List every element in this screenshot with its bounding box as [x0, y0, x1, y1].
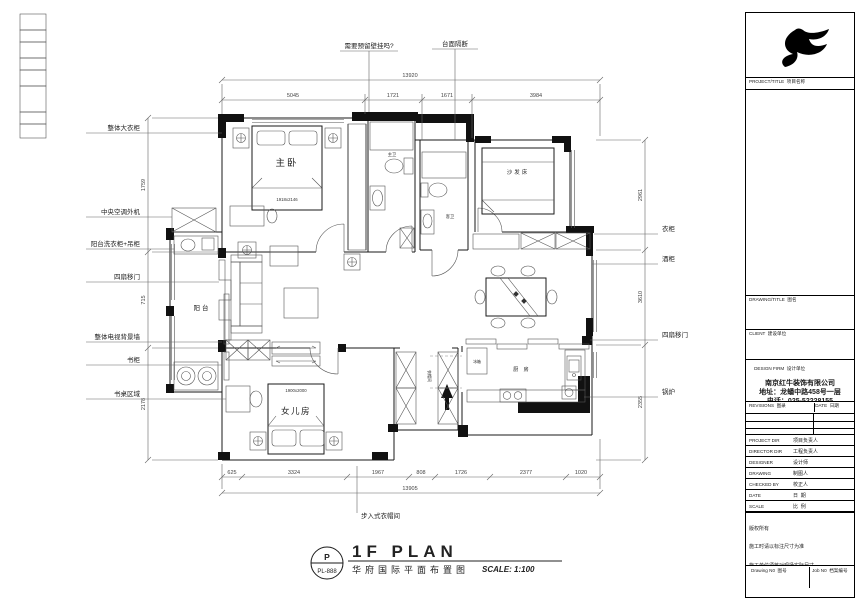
desk-chair — [250, 391, 262, 407]
guest-bath-label: 客卫 — [446, 213, 455, 220]
drawing-sheet: 主卧 1918x2146 主卫 客卫 沙发床 — [0, 0, 860, 608]
bull-logo-icon — [765, 28, 835, 68]
svg-text:1020: 1020 — [575, 470, 587, 476]
chair — [521, 266, 535, 276]
revisions-header: REVISIONS 图录 DATE 日期 — [746, 401, 854, 413]
design-firm-section: DESIGN FIRM 设计单位 南京红牛装饰有限公司 地址：龙蟠中路458号一… — [746, 359, 854, 401]
row-project-dir: PROJECT DIR 项目负责人 — [746, 434, 854, 445]
svg-text:3984: 3984 — [530, 93, 542, 99]
design-firm-label: DESIGN FIRM 设计单位 — [754, 366, 805, 371]
master-bath-label: 主卫 — [388, 151, 397, 157]
title-mark: P — [324, 552, 330, 562]
chair — [475, 290, 485, 304]
toilet — [385, 159, 403, 173]
annotation-walk-in-closet: 步入式衣帽间 — [361, 511, 400, 520]
row-checked: CHECKED BY 校正人 — [746, 478, 854, 489]
svg-text:808: 808 — [416, 470, 425, 476]
annotation-wardrobe: 整体大衣柜 — [108, 123, 141, 132]
drawing-no-label: Drawing N0 图号 — [749, 567, 810, 588]
revisions-grid — [746, 413, 854, 434]
walk-in-closet: 衣帽间 — [396, 352, 458, 424]
date-label: DATE 日期 — [815, 403, 839, 412]
annotation-wall-mount: 需要预留壁挂吗? — [344, 41, 394, 50]
svg-text:715: 715 — [141, 295, 147, 304]
drawing-title: P PL-888 1F PLAN 华府国际平面布置图 SCALE: 1:100 — [311, 542, 562, 579]
shower-floor — [422, 152, 466, 178]
sofa-bed — [482, 148, 554, 214]
dim-top-total: 13920 — [402, 73, 417, 79]
row-date: DATE 日 期 — [746, 489, 854, 500]
annotation-wardrobe-right: 衣柜 — [662, 224, 676, 233]
svg-text:1721: 1721 — [387, 93, 399, 99]
annotation-laundry-cabinet: 阳台洗衣柜+吊柜 — [91, 239, 141, 248]
master-bedroom: 主卧 1918x2146 — [230, 124, 366, 250]
daughter-room: 女儿房 1900x2000 — [224, 340, 342, 454]
desk — [226, 386, 250, 412]
company-address: 地址：龙蟠中路458号一层 — [749, 388, 851, 397]
wall-piers — [166, 112, 594, 460]
dining-table — [486, 278, 546, 316]
company-name: 南京红牛装饰有限公司 — [749, 379, 851, 388]
row-scale: SCALE 比 例 — [746, 500, 854, 511]
drawing-number-row: Drawing N0 图号 Job N0 档案编号 — [746, 565, 854, 589]
guest-bath: 客卫 — [421, 152, 466, 234]
chair — [491, 266, 505, 276]
svg-text:625: 625 — [227, 470, 236, 476]
svg-text:1726: 1726 — [455, 470, 467, 476]
drawing-title-label: DRAWING/TITLE 图名 — [746, 295, 854, 329]
project-title-label: PROJECT/TITLE 项目名称 — [746, 77, 854, 89]
svg-text:2178: 2178 — [141, 398, 147, 410]
closet-label: 衣帽间 — [427, 370, 433, 382]
chair — [491, 318, 505, 328]
svg-text:1759: 1759 — [141, 179, 147, 191]
dim-bottom-total: 13905 — [402, 486, 417, 492]
boiler — [562, 386, 576, 399]
frame-revision-boxes — [20, 14, 46, 138]
svg-text:5045: 5045 — [287, 93, 299, 99]
balcony: 阳台 — [172, 208, 218, 390]
title-cn: 华府国际平面布置图 — [352, 564, 469, 575]
wardrobe-hatch — [348, 124, 366, 250]
daughter-room-label: 女儿房 — [281, 406, 311, 416]
annotation-bookcase: 书柜 — [127, 355, 141, 364]
annotation-sliding-door-left: 四扇移门 — [114, 272, 140, 281]
client-label: CLIENT 建设单位 — [746, 329, 854, 359]
kitchen-label: 厨 房 — [513, 366, 530, 373]
svg-text:1671: 1671 — [441, 93, 453, 99]
svg-text:2961: 2961 — [638, 189, 644, 201]
sofa-bed-room: 沙发床 — [473, 148, 590, 249]
annotation-counter-partition: 台面隔断 — [442, 39, 469, 48]
dining-area — [475, 266, 557, 328]
sofa-bed-label: 沙发床 — [507, 168, 530, 176]
svg-text:2377: 2377 — [520, 470, 532, 476]
job-no-label: Job N0 档案编号 — [810, 567, 849, 588]
toilet — [429, 183, 447, 197]
rug — [284, 288, 318, 318]
revisions-label: REVISIONS 图录 — [749, 403, 815, 412]
title-en: 1F PLAN — [352, 542, 458, 561]
svg-text:1967: 1967 — [372, 470, 384, 476]
stool — [267, 209, 277, 223]
master-bath: 主卫 — [370, 122, 414, 248]
title-block: 红牛装饰 PROJECT/TITLE 项目名称 DRAWING/TITLE 图名… — [745, 12, 855, 598]
copyright-notes: 版权所有 施工时请以标注尺寸为准 施工单位须核对现场实际尺寸 如有不符请及时通知… — [746, 513, 854, 565]
daughter-bed-size: 1900x2000 — [285, 388, 307, 393]
title-code: PL-888 — [317, 569, 337, 575]
sofa — [240, 262, 262, 326]
chair — [547, 290, 557, 304]
bookcase — [224, 352, 229, 380]
living-room — [224, 242, 360, 344]
entry-arrow — [441, 384, 453, 398]
annotation-tv-wall: 整体电视背景墙 — [95, 332, 141, 341]
brand-logo: 红牛装饰 — [746, 13, 854, 77]
row-drawing: DRAWING 制图人 — [746, 467, 854, 478]
armchair — [270, 246, 298, 266]
master-bed-size: 1918x2146 — [276, 197, 298, 202]
row-director: DIRECTOR DIR 工程负责人 — [746, 445, 854, 456]
master-bedroom-label: 主卧 — [275, 157, 298, 169]
balcony-label: 阳台 — [194, 303, 211, 312]
laundry-sink-cabinet — [174, 236, 218, 254]
floor-plan: 主卧 1918x2146 主卫 客卫 沙发床 — [0, 0, 745, 608]
title-scale: SCALE: 1:100 — [482, 565, 535, 574]
svg-text:3610: 3610 — [638, 291, 644, 303]
annotation-desk-area: 书桌区域 — [114, 389, 141, 398]
windows — [172, 120, 597, 381]
annotation-wine-cabinet: 酒柜 — [662, 254, 676, 263]
radiator-cabinet — [473, 234, 519, 249]
project-title-field — [746, 89, 854, 295]
shower-floor — [370, 122, 413, 150]
annotation-sliding-door-right: 四扇移门 — [662, 330, 688, 339]
chair — [521, 318, 535, 328]
fridge-label: 冰箱 — [473, 359, 481, 364]
dresser — [230, 206, 264, 226]
annotations: 需要预留壁挂吗? 台面隔断 整体大衣柜 中央空调外机 阳台洗衣柜+吊柜 四扇移门… — [86, 39, 688, 520]
annotation-ac-unit: 中央空调外机 — [101, 207, 141, 216]
svg-text:3324: 3324 — [288, 470, 300, 476]
row-designer: DESIGNER 设计师 — [746, 456, 854, 467]
annotation-boiler: 锅炉 — [662, 387, 676, 396]
svg-text:2355: 2355 — [638, 396, 644, 408]
